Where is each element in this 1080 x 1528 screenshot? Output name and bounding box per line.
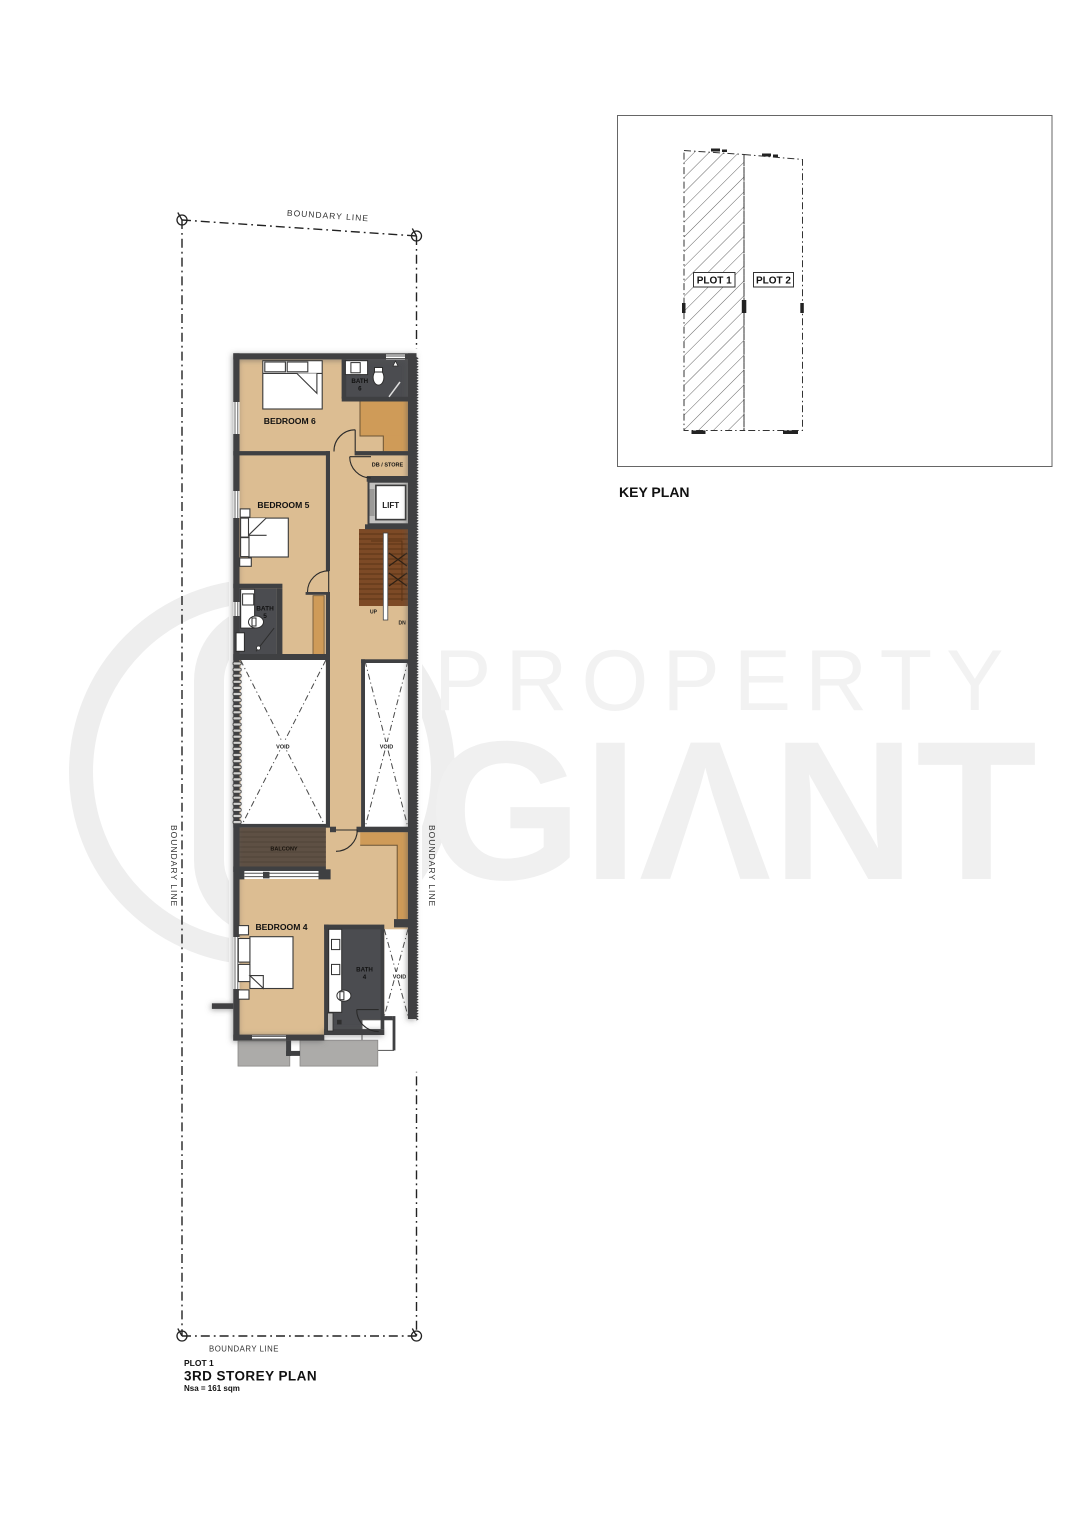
svg-text:PLOT 1: PLOT 1 <box>184 1358 214 1368</box>
svg-text:6: 6 <box>358 386 362 393</box>
svg-text:PLOT 2: PLOT 2 <box>756 276 791 287</box>
svg-text:3RD STOREY PLAN: 3RD STOREY PLAN <box>184 1369 317 1384</box>
svg-text:BEDROOM 4: BEDROOM 4 <box>255 922 307 932</box>
svg-text:BALCONY: BALCONY <box>270 847 298 853</box>
svg-text:DN: DN <box>399 621 407 627</box>
svg-text:Nsa = 161 sqm: Nsa = 161 sqm <box>184 1384 240 1393</box>
svg-text:BEDROOM 6: BEDROOM 6 <box>264 416 316 426</box>
svg-text:BOUNDARY LINE: BOUNDARY LINE <box>169 825 179 907</box>
svg-text:5: 5 <box>263 613 267 620</box>
svg-text:BATH: BATH <box>256 606 274 613</box>
svg-text:PLOT 1: PLOT 1 <box>697 276 732 287</box>
svg-text:BOUNDARY LINE: BOUNDARY LINE <box>209 1345 279 1354</box>
svg-text:BOUNDARY LINE: BOUNDARY LINE <box>427 825 437 907</box>
svg-text:KEY PLAN: KEY PLAN <box>619 484 690 500</box>
svg-text:4: 4 <box>363 974 367 981</box>
svg-text:VOID: VOID <box>276 745 289 751</box>
svg-text:BOUNDARY LINE: BOUNDARY LINE <box>287 208 370 224</box>
svg-text:BEDROOM 5: BEDROOM 5 <box>257 500 309 510</box>
svg-text:BATH: BATH <box>351 378 368 385</box>
svg-text:UP: UP <box>370 610 378 616</box>
svg-text:BATH: BATH <box>356 967 373 974</box>
svg-text:GIΛNT: GIΛNT <box>428 700 1038 921</box>
svg-text:DB / STORE: DB / STORE <box>372 463 404 469</box>
svg-text:VOID: VOID <box>380 745 393 751</box>
svg-text:LIFT: LIFT <box>382 501 399 510</box>
svg-text:VOID: VOID <box>393 975 406 981</box>
